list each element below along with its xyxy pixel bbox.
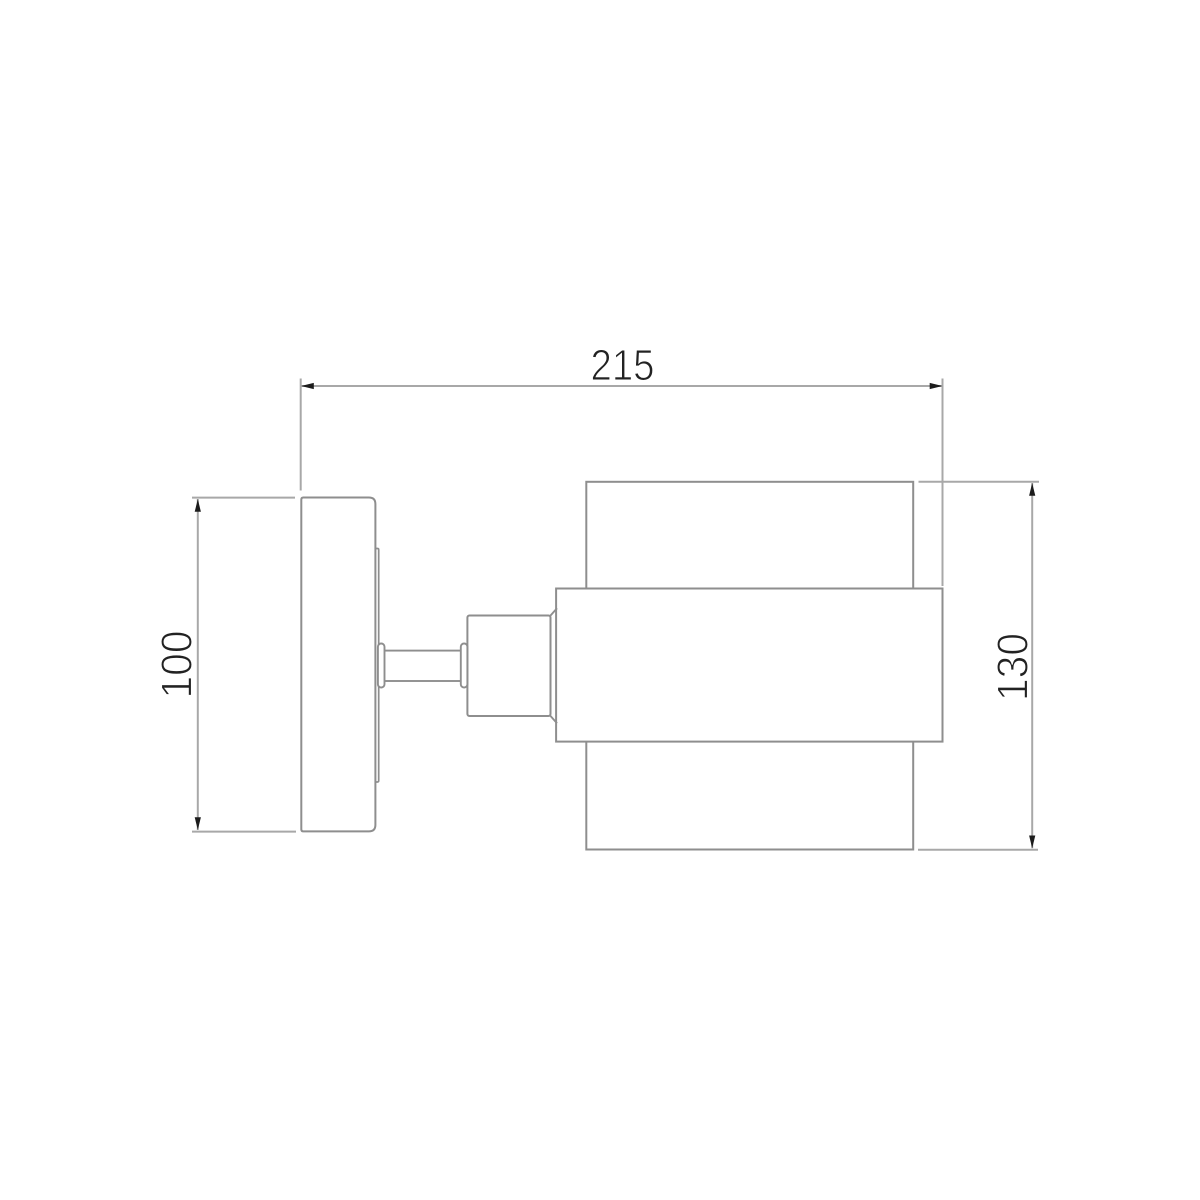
svg-text:215: 215 (591, 342, 655, 390)
svg-text:100: 100 (154, 631, 202, 699)
svg-text:130: 130 (990, 633, 1038, 701)
